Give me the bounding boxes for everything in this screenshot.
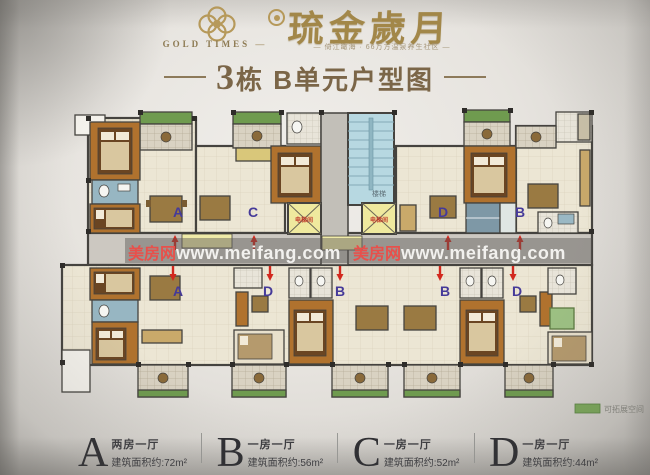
legend-area: 建筑面积约:72m² (111, 454, 187, 469)
unit-label-D: D (512, 283, 522, 299)
legend-area: 建筑面积约:52m² (384, 454, 460, 469)
legend-separator (201, 433, 202, 463)
legend-item-a: A 两房一厅 建筑面积约:72m² (78, 436, 187, 470)
legend-separator (474, 433, 475, 463)
floor-plan: 楼梯 电梯间 电梯间 (0, 0, 650, 475)
watermark-site-url: www.meifang.com (400, 243, 566, 263)
legend-item-b: B 一房一厅 建筑面积约:56m² (217, 436, 324, 470)
legend-item-c: C 一房一厅 建筑面积约:52m² (353, 436, 460, 470)
legend-layout: 一房一厅 (248, 436, 324, 452)
legend-area: 建筑面积约:56m² (248, 454, 324, 469)
unit-label-D: D (438, 204, 448, 220)
unit-label-A: A (173, 204, 183, 220)
elevator-label: 电梯间 (370, 216, 388, 224)
legend-letter: A (78, 436, 108, 470)
legend-layout: 两房一厅 (111, 436, 187, 452)
elevator-label: 电梯间 (295, 216, 313, 224)
unit-label-D: D (263, 283, 273, 299)
stair-label: 楼梯 (372, 189, 386, 198)
legend-letter: C (353, 436, 381, 470)
watermark-site-url: www.meifang.com (175, 243, 341, 263)
unit-label-B: B (440, 283, 450, 299)
expandable-space-label: 可拓展空间 (604, 404, 644, 414)
watermark-site-name: 美房网 (353, 244, 401, 263)
unit-label-B: B (515, 204, 525, 220)
expandable-space-legend: 可拓展空间 (575, 404, 644, 414)
unit-label-B: B (335, 283, 345, 299)
legend-item-d: D 一房一厅 建筑面积约:44m² (489, 436, 598, 470)
legend-letter: D (489, 436, 519, 470)
unit-label-C: C (248, 204, 258, 220)
legend-area: 建筑面积约:44m² (522, 454, 598, 469)
legend-letter: B (217, 436, 245, 470)
legend-layout: 一房一厅 (384, 436, 460, 452)
brochure-photo: GOLD TIMES 琉金歲月 倚江瞰海 · 66万方温泉养生社区 3栋 B单元… (0, 0, 650, 475)
unit-label-A: A (173, 283, 183, 299)
legend-separator (337, 433, 338, 463)
unit-legend: A 两房一厅 建筑面积约:72m² B 一房一厅 建筑面积约:56m² C 一房… (78, 426, 598, 470)
legend-layout: 一房一厅 (522, 436, 598, 452)
watermark-site-name: 美房网 (128, 244, 176, 263)
